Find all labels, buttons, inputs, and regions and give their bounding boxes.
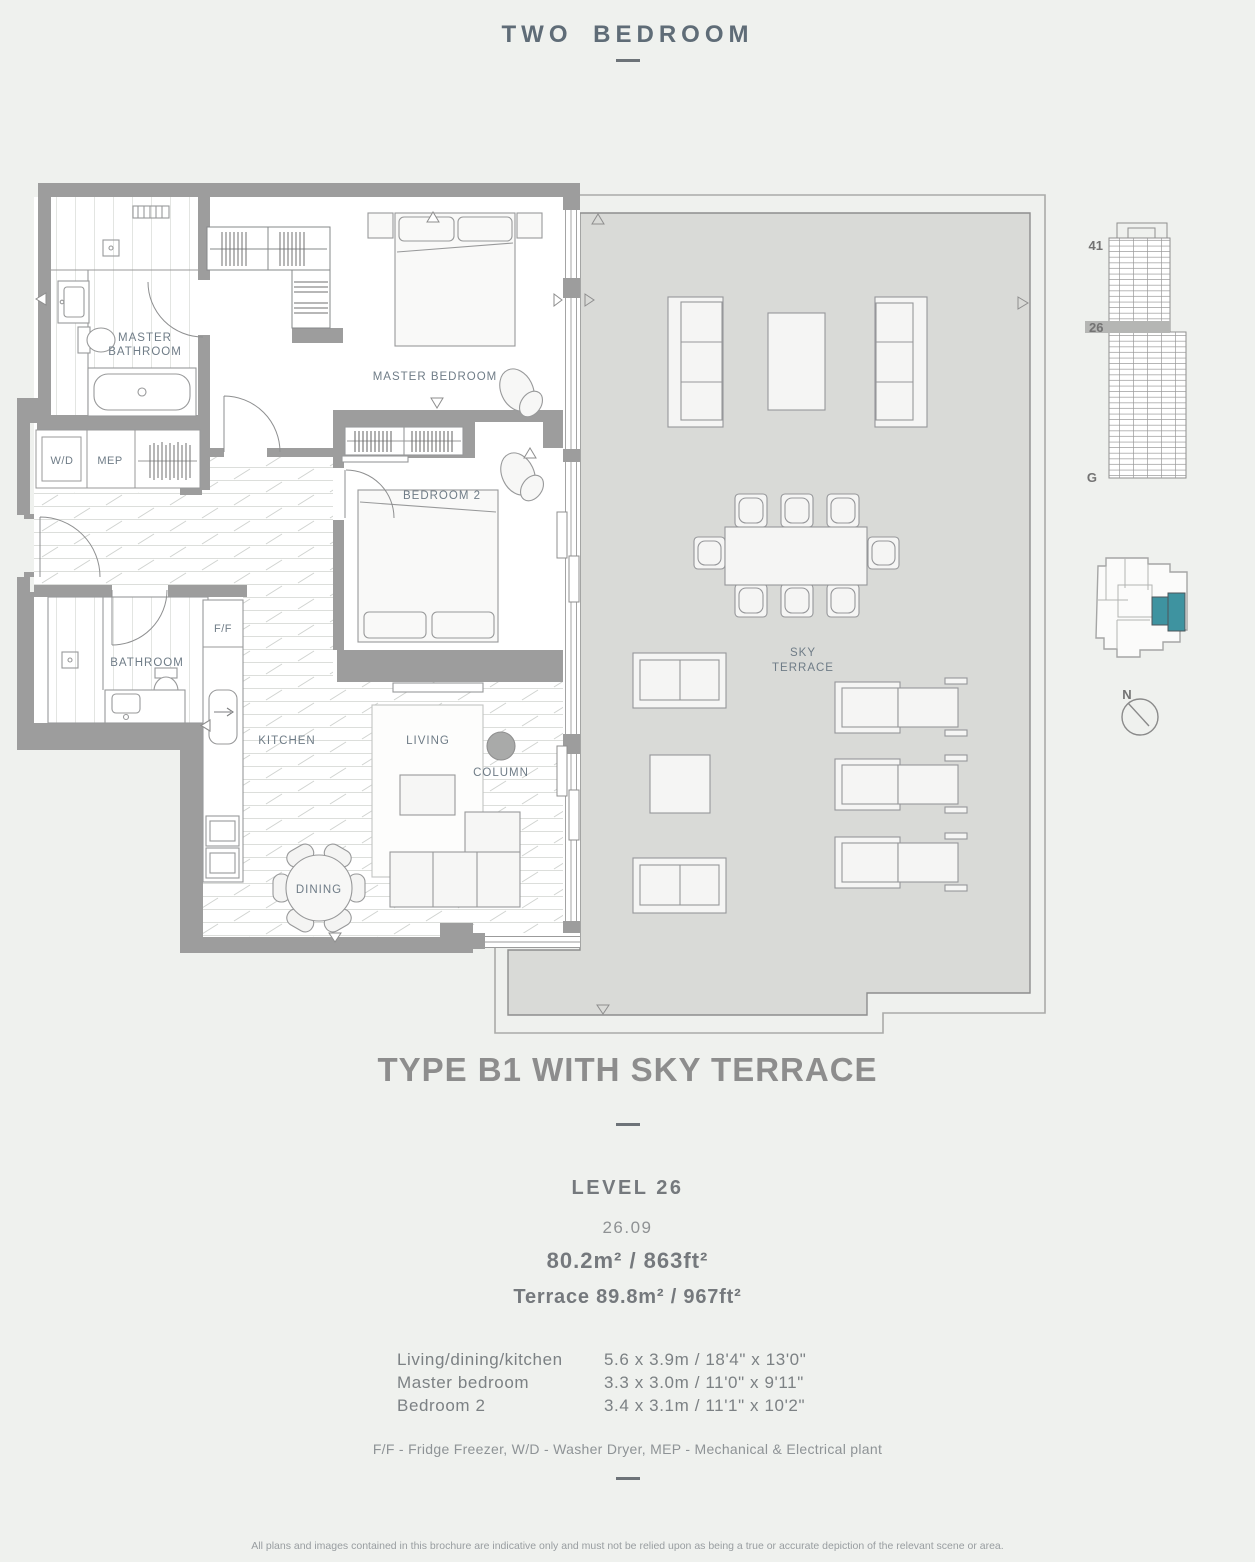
- elevation-top-floor-label: 41: [1089, 238, 1103, 253]
- terrace-sofa: [633, 858, 726, 913]
- room-label-kitchen: KITCHEN: [258, 735, 315, 747]
- basin-icon: [58, 281, 89, 323]
- internal-area: 80.2m² / 863ft²: [0, 1248, 1255, 1274]
- bedside-table: [368, 213, 393, 238]
- divider-dash: [616, 1477, 640, 1480]
- key-plan-unit-highlight: [1152, 593, 1185, 631]
- unit-number: 26.09: [0, 1218, 1255, 1238]
- dimensions-table: Living/dining/kitchen 5.6 x 3.9m / 18'4"…: [397, 1348, 806, 1417]
- bathtub-icon: [88, 368, 196, 416]
- apartment: MASTER BATHROOM MASTER BEDROOM BEDROOM 2…: [17, 183, 580, 953]
- room-label-bedroom-2: BEDROOM 2: [403, 490, 481, 502]
- room-label-master-bathroom: BATHROOM: [108, 346, 182, 358]
- label-washer-dryer: W/D: [51, 455, 74, 467]
- room-label-master-bedroom: MASTER BEDROOM: [373, 371, 498, 383]
- dimension-room: Bedroom 2: [397, 1394, 604, 1417]
- plan-type-title: TYPE B1 WITH SKY TERRACE: [0, 1051, 1255, 1089]
- dimension-size: 3.3 x 3.0m / 11'0" x 9'11": [604, 1371, 806, 1394]
- bed: [395, 213, 515, 346]
- bed: [358, 490, 498, 642]
- terrace-bench: [875, 297, 927, 427]
- terrace-sofa: [633, 653, 726, 708]
- floorplan: SKY TERRACE: [0, 150, 1255, 1040]
- room-label-sky-terrace: SKY: [790, 647, 816, 659]
- sink-icon: [209, 690, 237, 744]
- key-plan: [1096, 558, 1187, 657]
- coffee-table: [400, 775, 455, 815]
- room-label-bathroom: BATHROOM: [110, 657, 184, 669]
- brochure-page: TWO BEDROOM: [0, 0, 1255, 1562]
- dimension-room: Living/dining/kitchen: [397, 1348, 604, 1371]
- room-label-living: LIVING: [406, 735, 450, 747]
- disclaimer: All plans and images contained in this b…: [0, 1504, 1255, 1562]
- label-fridge-freezer: F/F: [214, 623, 232, 635]
- elevation-ground-label: G: [1087, 470, 1097, 485]
- bedside-table: [517, 213, 542, 238]
- elevation-level-label: 26: [1089, 320, 1103, 335]
- terrace-area: Terrace 89.8m² / 967ft²: [0, 1286, 1255, 1309]
- media-unit: [393, 683, 483, 692]
- divider-dash: [616, 59, 640, 62]
- abbreviation-legend: F/F - Fridge Freezer, W/D - Washer Dryer…: [0, 1441, 1255, 1457]
- room-label-dining: DINING: [296, 884, 342, 896]
- kitchen: [201, 600, 243, 882]
- terrace-bench: [668, 297, 723, 427]
- basin-icon: [105, 690, 185, 723]
- dimension-size: 5.6 x 3.9m / 18'4" x 13'0": [604, 1348, 806, 1371]
- level-label: LEVEL 26: [0, 1177, 1255, 1200]
- building-elevation: 41 26 G: [1085, 223, 1186, 485]
- column-icon: [487, 732, 515, 760]
- divider-dash: [616, 1123, 640, 1126]
- room-label-sky-terrace: TERRACE: [772, 662, 834, 674]
- room-label-column: COLUMN: [473, 767, 529, 779]
- disclaimer-line: All plans and images contained in this b…: [0, 1538, 1255, 1555]
- terrace-table: [768, 313, 825, 410]
- dimension-size: 3.4 x 3.1m / 11'1" x 10'2": [604, 1394, 806, 1417]
- page-title: TWO BEDROOM: [0, 21, 1255, 49]
- room-label-master-bathroom: MASTER: [118, 332, 172, 344]
- terrace-side-table: [650, 755, 710, 813]
- north-label: N: [1122, 687, 1131, 702]
- label-mep: MEP: [97, 455, 122, 467]
- north-compass: N: [1122, 687, 1158, 735]
- dimension-room: Master bedroom: [397, 1371, 604, 1394]
